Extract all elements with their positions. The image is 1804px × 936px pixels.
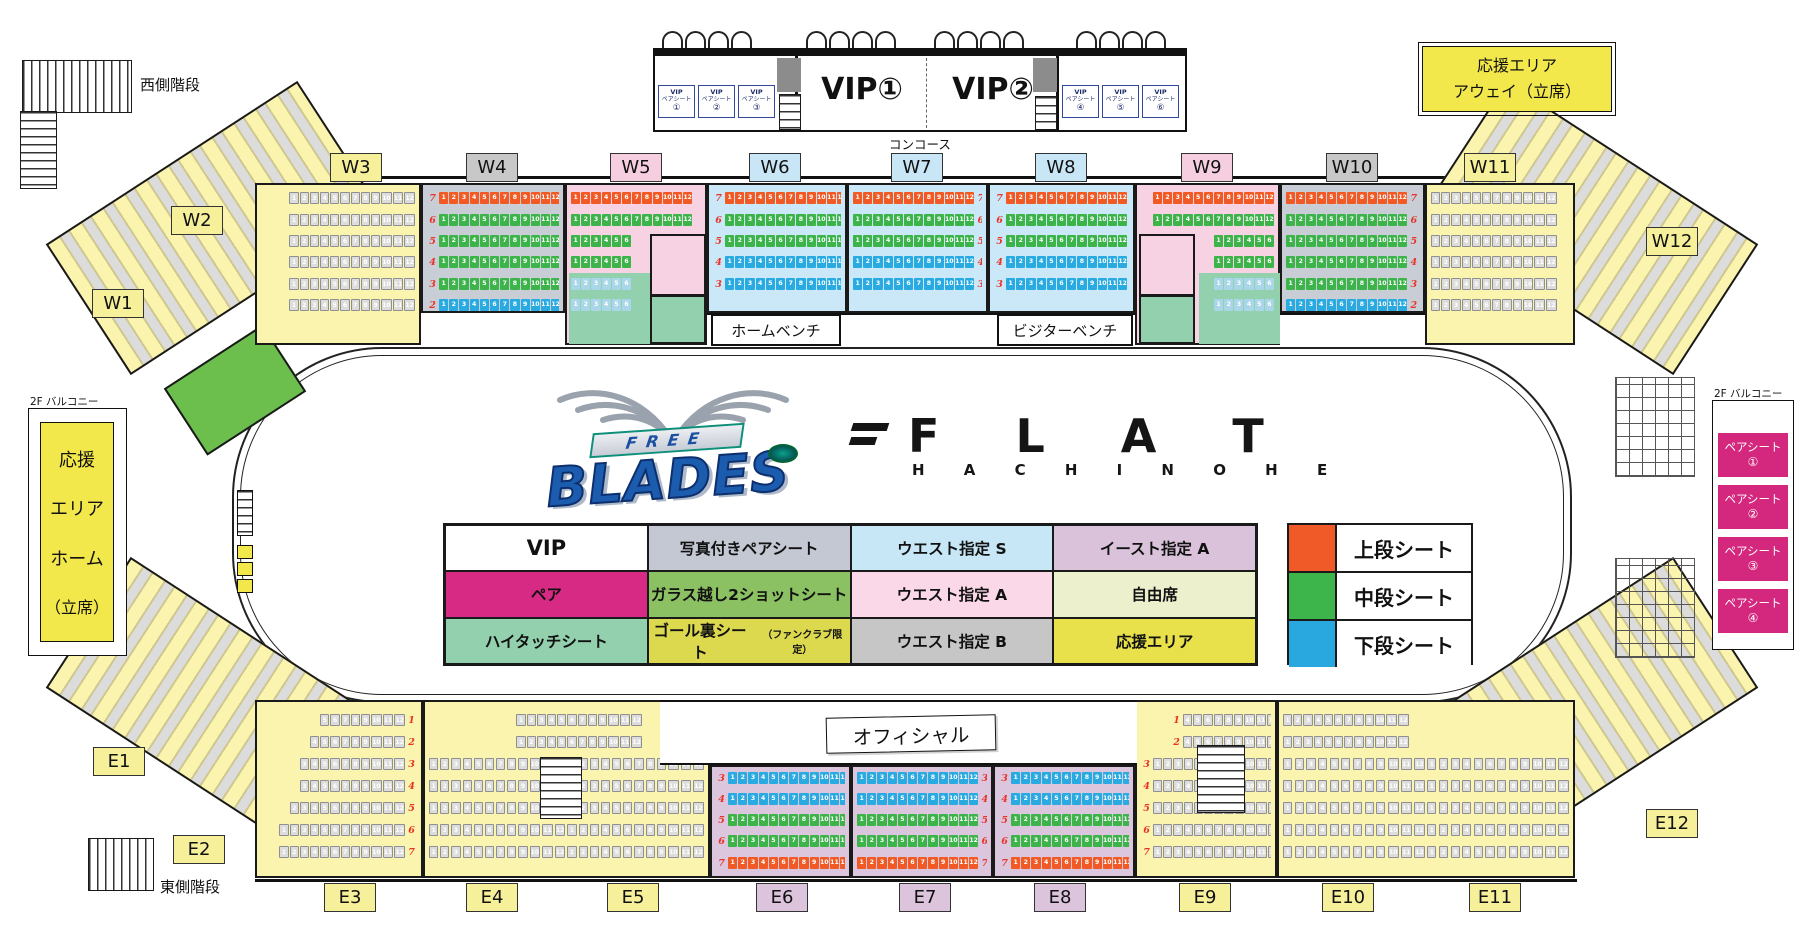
seat-row: 7123456789101112	[999, 857, 1129, 869]
seat: 4	[884, 256, 893, 268]
seat: 5	[1324, 736, 1333, 748]
seat: 10	[1375, 736, 1386, 748]
seat: 1	[439, 235, 448, 247]
seat: 1	[853, 256, 862, 268]
seat: 7	[1067, 235, 1076, 247]
seat: 9	[1234, 714, 1243, 726]
seat: 6	[485, 780, 494, 792]
seat: 1	[1153, 780, 1162, 792]
seat: 9	[521, 256, 530, 268]
seat: 10	[945, 214, 954, 226]
balcony-pair-seat-3: ペアシート③	[1718, 537, 1788, 581]
seat: 3	[745, 235, 754, 247]
seat: 1	[1431, 299, 1440, 311]
seat: 5	[1052, 793, 1061, 805]
seat: 12	[1414, 802, 1425, 814]
seat: 10	[371, 780, 382, 792]
seat: 11	[1545, 780, 1556, 792]
row-number: 2	[1408, 300, 1419, 311]
tier-color-swatch	[1289, 573, 1337, 619]
seat: 5	[898, 793, 907, 805]
seat: 1	[1427, 758, 1436, 770]
tier-color-swatch	[1289, 525, 1337, 571]
seat: 3	[1451, 256, 1460, 268]
seat-row: 1234567891011126	[261, 824, 417, 836]
seat: 6	[908, 772, 917, 784]
section-label-w4: W4	[466, 153, 518, 182]
seat: 9	[810, 772, 819, 784]
seat-row: 3123456789101112	[999, 772, 1129, 784]
seat: 2	[1224, 256, 1233, 268]
seat: 4	[1462, 278, 1471, 290]
seat: 5	[474, 758, 483, 770]
seat: 3	[1306, 256, 1315, 268]
seat: 6	[485, 846, 494, 858]
seat: 4	[888, 772, 897, 784]
seat-row: 123456789101112	[1431, 299, 1569, 311]
seat: 11	[383, 780, 394, 792]
seat: 4	[759, 772, 768, 784]
seat: 11	[1386, 736, 1397, 748]
seat-row: 2123456789101112	[427, 299, 559, 311]
seat: 12	[1265, 192, 1274, 204]
seat-row: 1234567891011123	[857, 772, 987, 784]
left-balcony-label: 2F バルコニー	[30, 394, 98, 409]
seat: 1	[1153, 802, 1162, 814]
seat: 5	[894, 214, 903, 226]
row-number: 3	[1408, 279, 1419, 290]
seat: 12	[1398, 214, 1407, 226]
seat: 7	[1344, 736, 1353, 748]
seat: 12	[969, 772, 978, 784]
seat: 2	[581, 256, 590, 268]
seat: 4	[756, 235, 765, 247]
seat: 10	[949, 772, 958, 784]
seat: 3	[459, 192, 468, 204]
seat: 3	[1031, 857, 1040, 869]
seat: 5	[1327, 256, 1336, 268]
seat: 8	[361, 256, 370, 268]
seat: 8	[1357, 235, 1366, 247]
row-number: 5	[999, 815, 1010, 826]
vip-pair-seat-box: VIPペアシート③	[738, 85, 775, 118]
seat-row: 3123456789101112	[994, 278, 1129, 290]
seat: 3	[745, 192, 754, 204]
seat: 5	[330, 256, 339, 268]
seat-section-w5: 1234567891011121234567891011121234561234…	[565, 183, 707, 345]
seat: 2	[863, 235, 872, 247]
seat: 10	[1388, 824, 1399, 836]
seat-row: 6123456789101112	[999, 835, 1129, 847]
seat: 4	[1317, 299, 1326, 311]
seat: 3	[1451, 846, 1460, 858]
seat: 5	[1047, 235, 1056, 247]
seat: 5	[1474, 758, 1483, 770]
seat: 5	[480, 299, 489, 311]
seat: 12	[965, 214, 974, 226]
seat: 2	[1296, 192, 1305, 204]
seat: 12	[1558, 802, 1569, 814]
legend-cell: ウエスト指定 S	[851, 525, 1054, 571]
seat: 2	[440, 802, 449, 814]
seat: 1	[725, 256, 734, 268]
flat-hachinohe-logo: F L A T H A C H I N O H E	[850, 415, 1320, 481]
seat: 11	[1534, 192, 1545, 204]
seat: 11	[1545, 846, 1556, 858]
seat: 5	[320, 714, 329, 726]
seat: 8	[799, 857, 808, 869]
seat: 9	[657, 780, 666, 792]
seat: 1	[1214, 299, 1223, 311]
stairs-block	[20, 111, 57, 189]
seat: 2	[1224, 278, 1233, 290]
seat-row: 7123456789101112	[713, 192, 841, 204]
seat: 6	[623, 758, 632, 770]
seat: 12	[840, 835, 845, 847]
seat: 11	[1401, 846, 1412, 858]
seat-row: 123456	[571, 235, 701, 247]
seat: 1	[725, 235, 734, 247]
seat: 5	[1330, 802, 1339, 814]
seat: 11	[393, 192, 404, 204]
seat: 6	[340, 214, 349, 226]
seat: 3	[300, 824, 309, 836]
seat: 9	[1093, 814, 1102, 826]
seat: 4	[1184, 780, 1193, 792]
seat: 5	[612, 758, 621, 770]
seat-row: 123456789101112	[261, 278, 415, 290]
seat: 1	[725, 192, 734, 204]
seat: 1	[853, 278, 862, 290]
seat: 2	[449, 214, 458, 226]
seat-section-w7: 1234567891011127123456789101112612345678…	[847, 183, 988, 313]
seat: 1	[1011, 835, 1020, 847]
seat: 2	[867, 772, 876, 784]
row-number: 4	[1141, 781, 1152, 792]
seat: 4	[320, 278, 329, 290]
row-number: 6	[716, 836, 727, 847]
seat: 1	[1283, 802, 1292, 814]
seat-row: 123456789101112	[571, 192, 701, 204]
seat: 4	[310, 758, 319, 770]
seat: 11	[1113, 814, 1122, 826]
seat: 1	[1011, 814, 1020, 826]
seat: 7	[634, 802, 643, 814]
seat: 8	[1354, 714, 1363, 726]
seat: 5	[612, 214, 621, 226]
seat: 4	[1037, 278, 1046, 290]
pair-seat-column: ペアシート①ペアシート②ペアシート③ペアシート④	[1712, 400, 1794, 650]
legend-table: VIP写真付きペアシートウエスト指定 Sイースト指定 Aペアガラス越し2ショット…	[443, 523, 1258, 666]
seat: 5	[1327, 235, 1336, 247]
seat: 4	[602, 214, 611, 226]
seat: 2	[1293, 736, 1302, 748]
seat: 4	[1042, 793, 1051, 805]
seat: 11	[1401, 758, 1412, 770]
seat: 12	[551, 256, 559, 268]
seat: 6	[1482, 299, 1491, 311]
seat: 11	[383, 802, 394, 814]
seat: 6	[1485, 846, 1494, 858]
seat: 1	[429, 846, 438, 858]
seat: 3	[1451, 802, 1460, 814]
seat: 12	[394, 824, 405, 836]
seat: 8	[796, 214, 805, 226]
seat: 12	[1546, 192, 1557, 204]
seat: 9	[1368, 214, 1377, 226]
seat: 1	[1153, 824, 1162, 836]
seat: 8	[361, 214, 370, 226]
seat-row: 1234567891011127	[1286, 192, 1419, 204]
tier-legend-row: 中段シート	[1289, 573, 1471, 621]
seat: 11	[1388, 192, 1397, 204]
balcony-pair-seat-2: ペアシート②	[1718, 485, 1788, 529]
seat: 4	[1462, 256, 1471, 268]
seat: 4	[310, 846, 319, 858]
seat: 4	[1314, 736, 1323, 748]
flat-text: F L A T	[908, 409, 1294, 463]
seat-row: 123456789101112123456789101112	[1283, 846, 1569, 858]
seat-row: 1234567891011122	[1286, 299, 1419, 311]
seat: 10	[1378, 192, 1387, 204]
seat: 4	[1037, 214, 1046, 226]
seat: 8	[928, 814, 937, 826]
seat: 8	[1502, 192, 1511, 204]
seat: 7	[1497, 780, 1506, 792]
seat: 4	[547, 714, 556, 726]
seat: 4	[602, 235, 611, 247]
tier-legend-row: 上段シート	[1289, 525, 1471, 573]
seat: 4	[1462, 780, 1471, 792]
seat: 7	[1072, 814, 1081, 826]
seat: 11	[1256, 714, 1267, 726]
seat: 9	[1088, 235, 1097, 247]
seat-row: 123456789101112	[261, 192, 415, 204]
seat: 8	[1077, 278, 1086, 290]
seat: 11	[542, 846, 553, 858]
seat: 4	[1183, 214, 1192, 226]
row-number: 6	[713, 215, 724, 226]
seat: 11	[681, 780, 692, 792]
seat: 8	[1502, 278, 1511, 290]
seat: 5	[766, 192, 775, 204]
seat: 5	[1474, 802, 1483, 814]
seat: 5	[766, 214, 775, 226]
seat: 9	[1520, 758, 1529, 770]
seat: 7	[634, 758, 643, 770]
seat: 5	[1327, 278, 1336, 290]
seat: 8	[1357, 214, 1366, 226]
seat: 1	[1011, 857, 1020, 869]
section-label-w11: W11	[1464, 153, 1516, 182]
seat: 12	[404, 192, 415, 204]
seat: 7	[341, 846, 350, 858]
seat: 9	[1513, 214, 1522, 226]
seat: 1	[853, 214, 862, 226]
seat: 12	[965, 278, 974, 290]
seat-row: 4567891011122	[261, 736, 417, 748]
seat: 9	[939, 814, 948, 826]
section-label-w5: W5	[610, 153, 662, 182]
vip-elevator-block	[777, 58, 801, 92]
seat: 11	[827, 235, 836, 247]
seat: 5	[1472, 256, 1481, 268]
seat: 5	[320, 736, 329, 748]
seat: 7	[578, 736, 587, 748]
seat-row: 123456789101112	[1141, 192, 1274, 204]
seat: 8	[1365, 758, 1374, 770]
seat-row: 123456789101112	[261, 235, 415, 247]
seat: 12	[683, 214, 692, 226]
seat: 12	[555, 846, 566, 858]
seat: 11	[955, 278, 964, 290]
seat: 3	[459, 256, 468, 268]
seat: 5	[1047, 214, 1056, 226]
seat: 6	[330, 714, 339, 726]
seat: 8	[351, 846, 360, 858]
seat: 6	[340, 235, 349, 247]
seat: 3	[310, 214, 319, 226]
seat: 1	[1214, 278, 1223, 290]
seat: 9	[361, 714, 370, 726]
row-number: 3	[716, 773, 727, 784]
seat: 8	[1357, 256, 1366, 268]
seat: 6	[908, 814, 917, 826]
seat: 7	[786, 235, 795, 247]
seat: 6	[776, 192, 785, 204]
seat: 12	[555, 824, 566, 836]
seat: 9	[653, 214, 662, 226]
seat: 10	[817, 278, 826, 290]
seat: 11	[1113, 772, 1122, 784]
seat: 10	[371, 824, 382, 836]
seat: 1	[1214, 235, 1223, 247]
seat: 3	[590, 802, 599, 814]
seat: 2	[1224, 235, 1233, 247]
seat: 1	[728, 772, 737, 784]
seat: 9	[1520, 802, 1529, 814]
stairs-block	[540, 757, 582, 819]
seat-row: 3123456789101112	[427, 278, 559, 290]
seat: 1	[571, 278, 580, 290]
vip-pair-seats-right: VIPペアシート④VIPペアシート⑤VIPペアシート⑥	[1062, 85, 1179, 118]
seat: 4	[310, 736, 319, 748]
seat: 1	[857, 814, 866, 826]
seat: 11	[1534, 278, 1545, 290]
seat: 5	[320, 802, 329, 814]
seat: 1	[289, 192, 298, 204]
seat: 2	[735, 278, 744, 290]
seat: 1	[728, 814, 737, 826]
seat: 5	[480, 235, 489, 247]
seat: 12	[404, 235, 415, 247]
seat: 11	[1401, 802, 1412, 814]
seat: 5	[1047, 278, 1056, 290]
seat: 9	[521, 214, 530, 226]
seat: 6	[490, 299, 499, 311]
seat: 8	[351, 802, 360, 814]
seat: 7	[918, 793, 927, 805]
seat: 5	[1472, 192, 1481, 204]
seat: 12	[1118, 256, 1127, 268]
seat: 10	[1532, 780, 1543, 792]
seat: 5	[557, 736, 566, 748]
seat: 8	[361, 278, 370, 290]
seat-row: 7123456789101112	[1141, 846, 1271, 858]
seat-section-w8: 7123456789101112612345678910111251234567…	[988, 183, 1135, 313]
seat: 6	[490, 278, 499, 290]
seat: 9	[810, 835, 819, 847]
seat: 12	[693, 802, 704, 814]
seat: 3	[873, 192, 882, 204]
seat: 9	[518, 846, 527, 858]
seat: 11	[1108, 214, 1117, 226]
seat: 6	[904, 192, 913, 204]
seat: 10	[531, 235, 540, 247]
seat: 6	[623, 846, 632, 858]
row-number: 6	[1408, 215, 1419, 226]
seat: 1	[857, 793, 866, 805]
seat: 7	[918, 814, 927, 826]
seat: 2	[300, 299, 309, 311]
seat: 1	[1286, 299, 1295, 311]
seat: 2	[1163, 846, 1172, 858]
seat: 4	[759, 814, 768, 826]
seat: 5	[320, 780, 329, 792]
seat-row: 123456789101112123456789101112	[429, 824, 704, 836]
seat-row: 123456789101112	[1431, 214, 1569, 226]
seat: 11	[1108, 278, 1117, 290]
legend-cell: ハイタッチシート	[445, 618, 648, 664]
seat: 1	[853, 235, 862, 247]
seat: 6	[1337, 278, 1346, 290]
legend-cell: 自由席	[1053, 571, 1256, 617]
seat: 3	[459, 299, 468, 311]
legend-cell: 応援エリア	[1053, 618, 1256, 664]
seat: 8	[510, 278, 519, 290]
seat: 3	[591, 235, 600, 247]
seat: 7	[500, 299, 509, 311]
seat: 8	[924, 192, 933, 204]
seat: 12	[1123, 772, 1129, 784]
seat: 4	[1462, 214, 1471, 226]
seat: 11	[1108, 256, 1117, 268]
seat-row: 3123456789101112	[713, 278, 841, 290]
seat: 4	[602, 299, 611, 311]
seat: 8	[510, 214, 519, 226]
seat: 9	[1088, 278, 1097, 290]
seat: 9	[1093, 772, 1102, 784]
seat: 9	[939, 857, 948, 869]
seat: 9	[1376, 846, 1385, 858]
seat-row: 1234567891011127	[857, 857, 987, 869]
seat: 12	[1123, 857, 1129, 869]
seat: 6	[623, 802, 632, 814]
seat: 2	[1016, 256, 1025, 268]
row-number: 2	[406, 737, 417, 748]
seat-section-w9: 1234567891011121234567891011121234561234…	[1135, 183, 1280, 345]
seat: 12	[1118, 235, 1127, 247]
seat: 7	[1067, 214, 1076, 226]
seat: 3	[748, 772, 757, 784]
row-number: 4	[975, 257, 982, 268]
seat: 11	[620, 736, 631, 748]
seat: 8	[351, 758, 360, 770]
seat: 12	[837, 278, 841, 290]
section-label-w7: W7	[891, 153, 943, 182]
seat: 1	[279, 846, 288, 858]
row-number: 7	[975, 193, 982, 204]
